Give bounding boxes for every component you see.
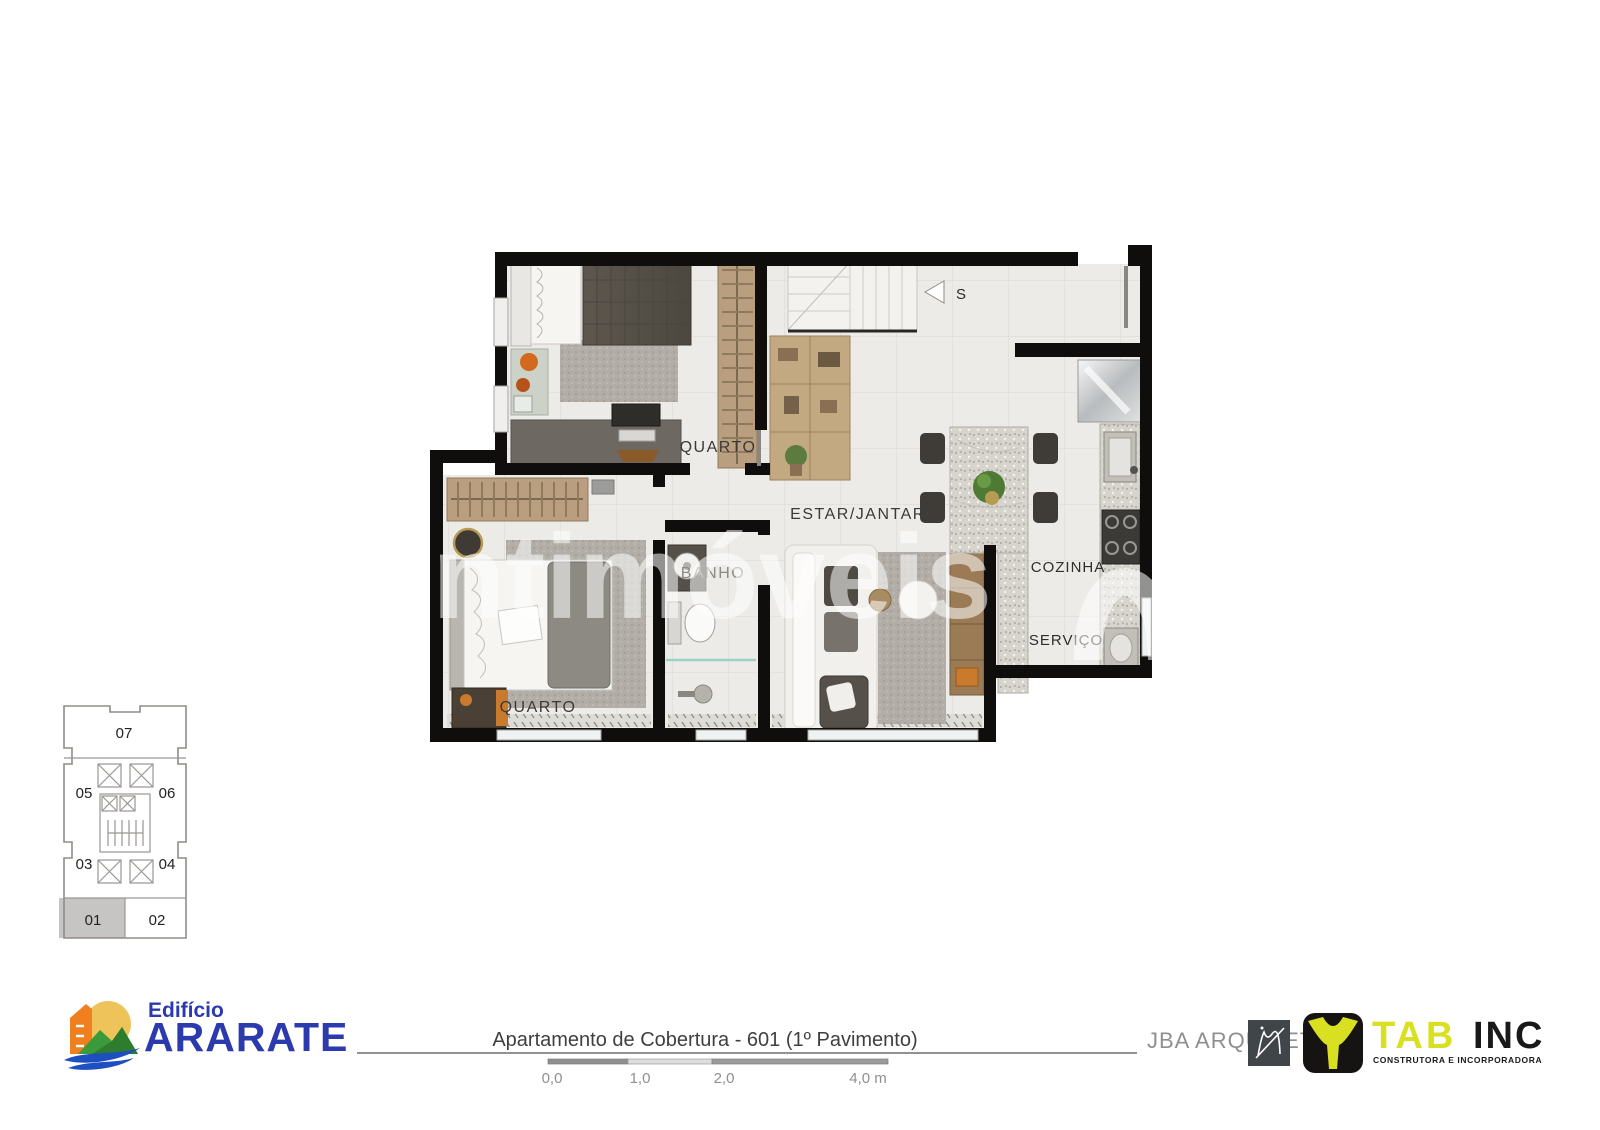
key-plan-core bbox=[98, 764, 153, 883]
wall-hatch-strip bbox=[668, 714, 756, 727]
tank-basin bbox=[1110, 634, 1132, 662]
decor bbox=[460, 694, 472, 706]
wall-bedroom1-left bbox=[495, 252, 507, 475]
desk-pad bbox=[617, 450, 659, 462]
bed-headboard bbox=[511, 258, 531, 346]
ararate-logo-icon bbox=[64, 1001, 140, 1070]
stair-body bbox=[788, 260, 917, 330]
wall-kitchen-bottom bbox=[996, 665, 1152, 678]
shelf bbox=[592, 480, 614, 494]
scale-label-1: 1,0 bbox=[630, 1070, 651, 1087]
wall-bedroom2-right-a bbox=[653, 463, 665, 487]
kitchen-sink-basin bbox=[1109, 438, 1131, 476]
key-plan-unit-04: 04 bbox=[159, 856, 176, 873]
wall-right-upper bbox=[1140, 252, 1152, 357]
watermark-text: ntimóveis bbox=[432, 510, 992, 644]
scale-bar: 0,0 1,0 2,0 4,0 m bbox=[542, 1059, 888, 1087]
stair-direction-label: S bbox=[956, 286, 966, 303]
dining-chair bbox=[1033, 492, 1058, 523]
key-plan-unit-03: 03 bbox=[76, 856, 93, 873]
shelf-plant bbox=[785, 445, 807, 467]
room-label-quarto-bottom: QUARTO bbox=[500, 699, 577, 716]
jba-monogram-icon bbox=[1248, 1020, 1290, 1066]
key-plan-unit-01: 01 bbox=[85, 912, 102, 929]
decor-book bbox=[514, 396, 532, 412]
window bbox=[497, 730, 601, 740]
wall-kitchen-top bbox=[1015, 343, 1152, 357]
tab-inc-logo: TAB INC CONSTRUTORA E INCORPORADORA bbox=[1303, 1013, 1544, 1073]
decor-flower bbox=[516, 378, 530, 392]
ottoman-throw bbox=[826, 682, 857, 713]
key-plan-unit-06: 06 bbox=[159, 785, 176, 802]
scale-label-0: 0,0 bbox=[542, 1070, 563, 1087]
room-label-quarto-top: QUARTO bbox=[680, 439, 757, 456]
bedroom-door-leaf bbox=[757, 430, 761, 466]
shelf-box bbox=[820, 400, 837, 413]
table-plant-leaf bbox=[977, 474, 991, 488]
desk bbox=[511, 420, 681, 468]
bed-pillows bbox=[531, 260, 581, 344]
scale-label-2: 2,0 bbox=[714, 1070, 735, 1087]
window bbox=[696, 730, 746, 740]
jba-signature-dot bbox=[1261, 1027, 1264, 1030]
footer: Edifício ARARATE Apartamento de Cobertur… bbox=[64, 999, 1544, 1087]
bedroom-top bbox=[511, 258, 757, 468]
key-plan: 07 05 06 03 04 01 02 bbox=[59, 706, 186, 938]
rack-decor bbox=[956, 668, 978, 686]
floorplan-canvas: S bbox=[0, 0, 1600, 1130]
shelf-box bbox=[784, 396, 799, 414]
plant-pot bbox=[985, 491, 999, 505]
builder-name: TAB bbox=[1372, 1015, 1456, 1057]
builder-subtitle: CONSTRUTORA E INCORPORADORA bbox=[1373, 1055, 1542, 1065]
rug bbox=[560, 340, 678, 402]
key-plan-unit-05: 05 bbox=[76, 785, 93, 802]
shelf-box bbox=[778, 348, 798, 361]
shower-drain bbox=[694, 685, 712, 703]
key-plan-unit-02: 02 bbox=[149, 912, 166, 929]
window bbox=[494, 386, 508, 432]
builder-suffix: INC bbox=[1473, 1015, 1544, 1057]
wall-bedroom1-right bbox=[755, 252, 767, 430]
entry-door-leaf bbox=[1124, 266, 1128, 328]
floorplan-sheet: S bbox=[0, 0, 1600, 1130]
main-floorplan: S bbox=[430, 245, 1162, 742]
room-label-cozinha: COZINHA bbox=[1031, 559, 1106, 576]
window bbox=[808, 730, 978, 740]
faucet bbox=[1130, 466, 1138, 474]
window bbox=[494, 298, 508, 346]
scale-segment bbox=[628, 1059, 712, 1064]
sheet-title: Apartamento de Cobertura - 601 (1º Pavim… bbox=[492, 1029, 917, 1051]
scale-segment bbox=[712, 1059, 888, 1064]
lamp bbox=[520, 353, 538, 371]
scale-label-4: 4,0 m bbox=[849, 1070, 887, 1087]
shelf-box bbox=[818, 352, 840, 367]
dining-chair bbox=[920, 433, 945, 464]
keyboard bbox=[619, 430, 655, 441]
dining-chair bbox=[1033, 433, 1058, 464]
scale-segment bbox=[548, 1059, 628, 1064]
wall-top bbox=[495, 252, 1078, 266]
shelf-plant-pot bbox=[790, 464, 802, 476]
key-plan-unit-07: 07 bbox=[116, 725, 133, 742]
computer-monitor bbox=[612, 404, 660, 426]
building-name: ARARATE bbox=[144, 1014, 348, 1060]
